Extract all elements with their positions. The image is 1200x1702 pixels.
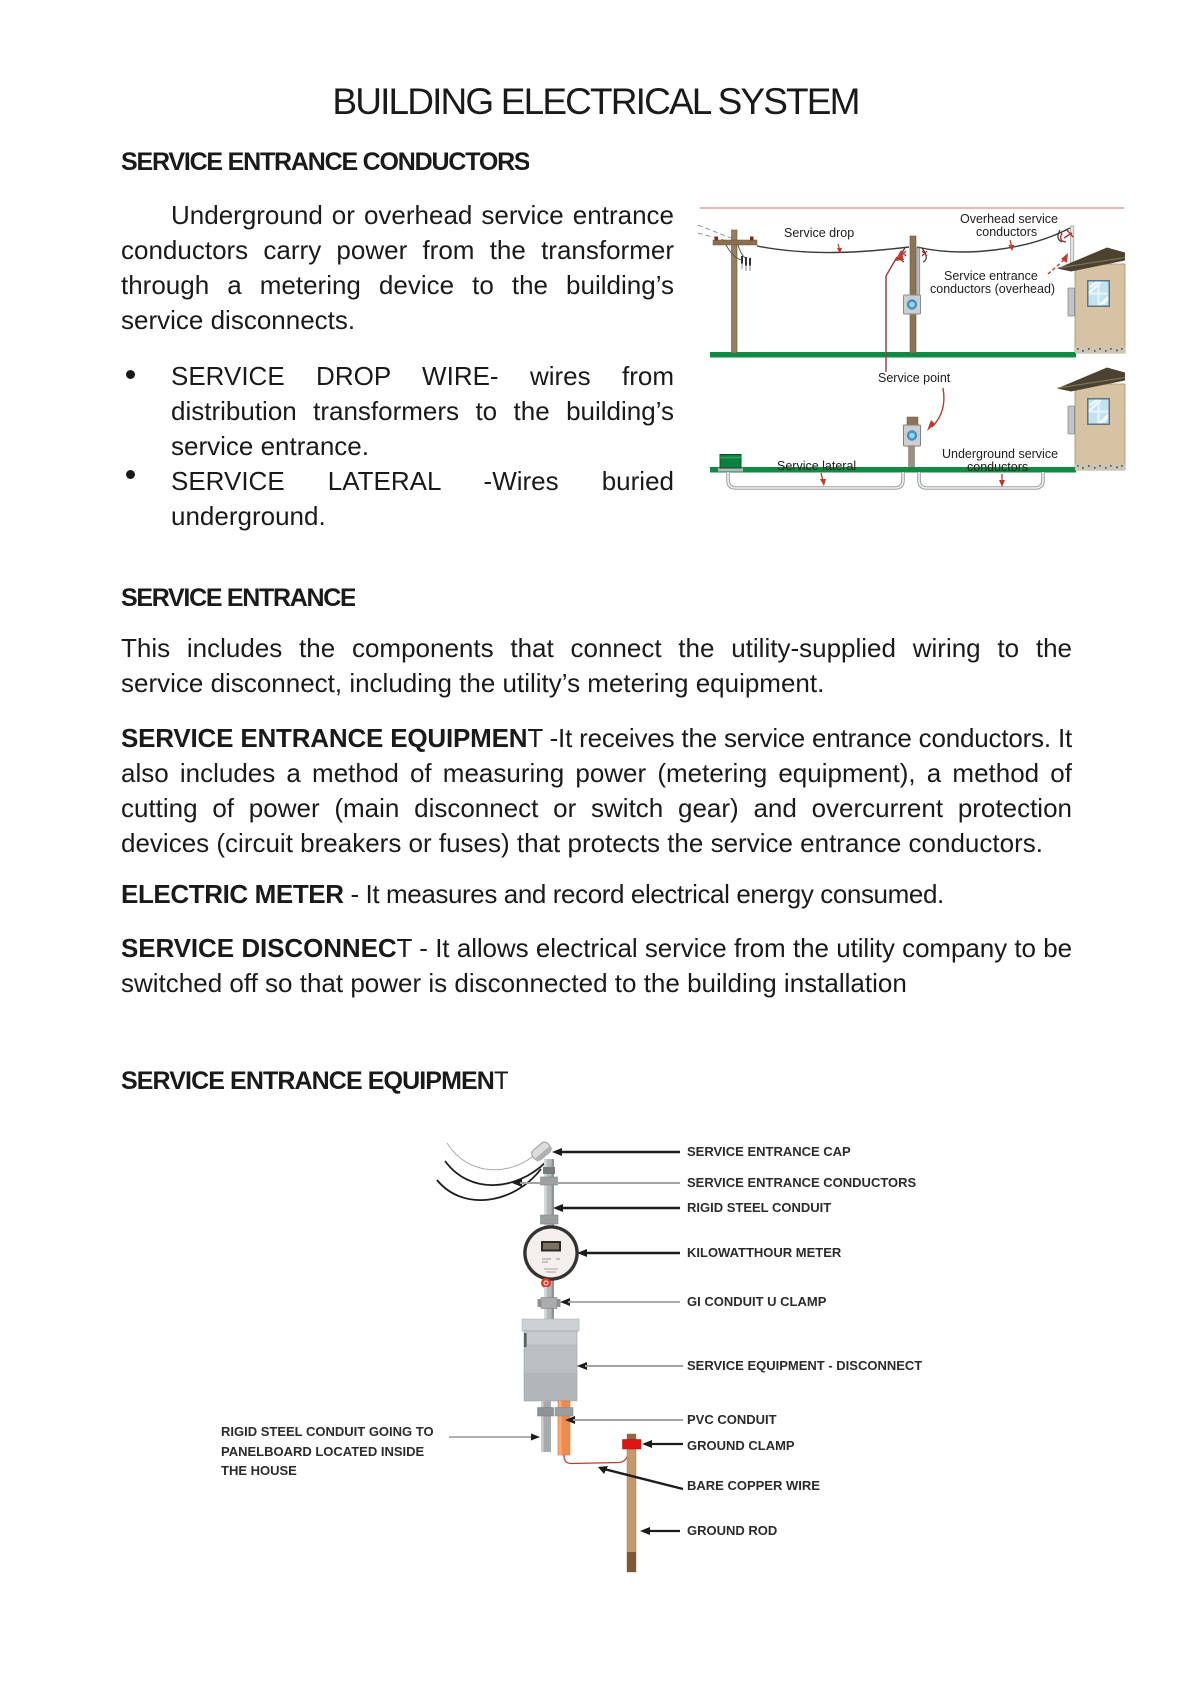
svg-text:SERVICE EQUIPMENT - DISCONNECT: SERVICE EQUIPMENT - DISCONNECT (687, 1358, 922, 1373)
svg-text:Service lateral: Service lateral (777, 459, 856, 473)
svg-text:Service drop: Service drop (784, 226, 854, 240)
svg-text:Service point: Service point (878, 371, 951, 385)
svg-text:THE HOUSE: THE HOUSE (221, 1463, 297, 1478)
svg-text:conductors: conductors (976, 225, 1037, 239)
svg-text:Overhead service: Overhead service (960, 212, 1058, 226)
svg-text:Service entrance: Service entrance (944, 269, 1038, 283)
svg-text:GROUND ROD: GROUND ROD (687, 1523, 777, 1538)
svg-text:KILOWATTHOUR METER: KILOWATTHOUR METER (687, 1245, 842, 1260)
svg-text:conductors (overhead): conductors (overhead) (930, 282, 1055, 296)
svg-text:GROUND CLAMP: GROUND CLAMP (687, 1438, 795, 1453)
svg-text:BARE COPPER WIRE: BARE COPPER WIRE (687, 1478, 820, 1493)
svg-text:SERVICE ENTRANCE CONDUCTORS: SERVICE ENTRANCE CONDUCTORS (687, 1175, 917, 1190)
svg-text:Underground service: Underground service (942, 447, 1058, 461)
svg-text:RIGID STEEL CONDUIT: RIGID STEEL CONDUIT (687, 1200, 831, 1215)
svg-text:SERVICE ENTRANCE CAP: SERVICE ENTRANCE CAP (687, 1144, 851, 1159)
svg-text:RIGID STEEL CONDUIT GOING TO: RIGID STEEL CONDUIT GOING TO (221, 1424, 434, 1439)
svg-text:conductors: conductors (967, 460, 1028, 474)
svg-text:GI CONDUIT U CLAMP: GI CONDUIT U CLAMP (687, 1294, 827, 1309)
svg-text:PANELBOARD LOCATED INSIDE: PANELBOARD LOCATED INSIDE (221, 1444, 425, 1459)
svg-text:PVC CONDUIT: PVC CONDUIT (687, 1412, 777, 1427)
